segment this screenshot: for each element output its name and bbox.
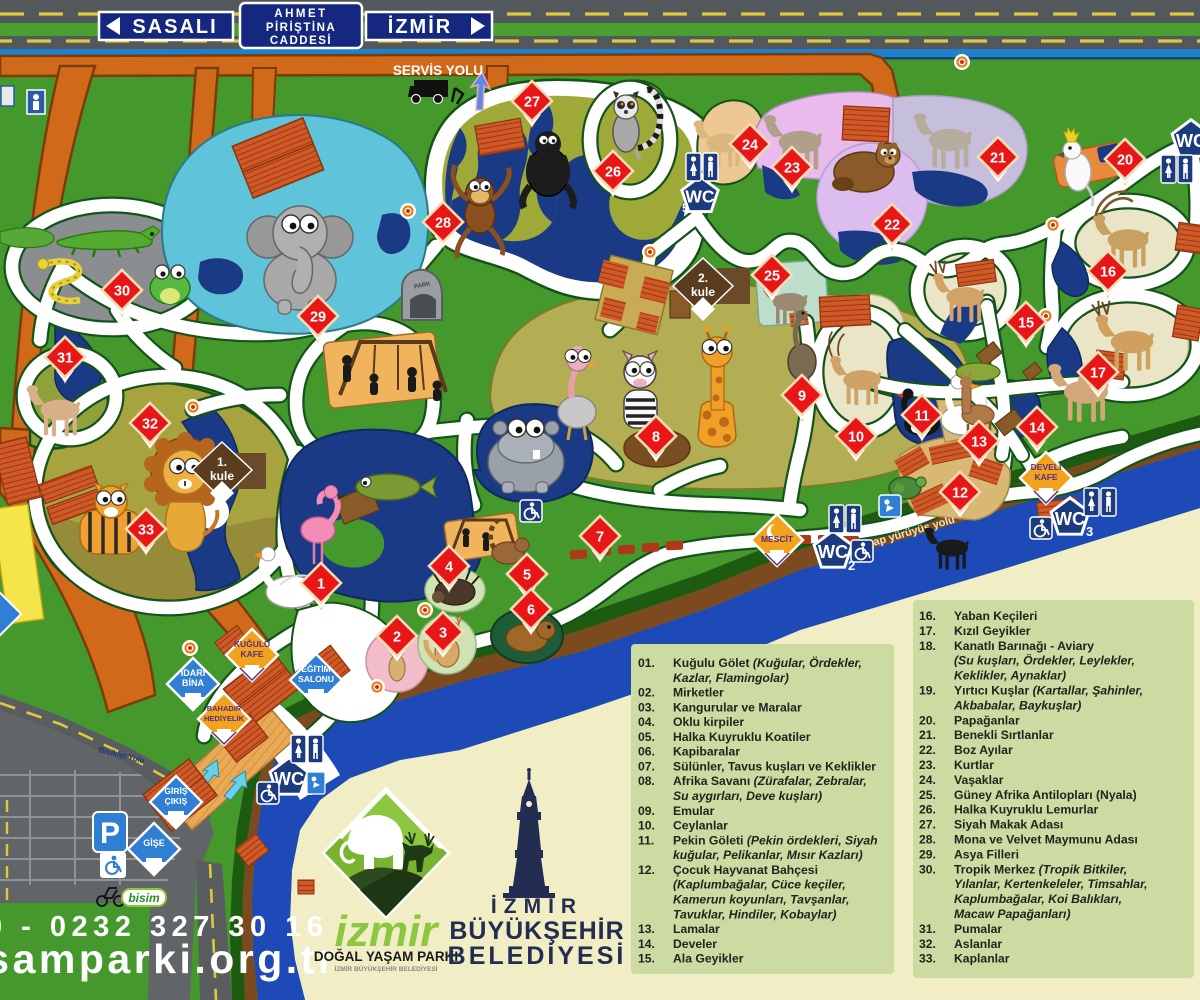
svg-text:Halka Kuyruklu Koatiler: Halka Kuyruklu Koatiler	[673, 730, 811, 744]
svg-text:31: 31	[57, 351, 73, 367]
svg-text:1: 1	[317, 577, 325, 593]
svg-text:BİNA: BİNA	[182, 678, 204, 688]
svg-text:5: 5	[682, 201, 689, 215]
svg-text:İZMİR BÜYÜKŞEHİR BELEDİYESİ: İZMİR BÜYÜKŞEHİR BELEDİYESİ	[335, 964, 438, 973]
svg-text:KAFE: KAFE	[1034, 472, 1057, 482]
svg-text:ÇIKIŞ: ÇIKIŞ	[165, 796, 188, 806]
svg-text:Vaşaklar: Vaşaklar	[954, 773, 1004, 787]
svg-text:BAHADIR: BAHADIR	[207, 704, 242, 713]
svg-text:17.: 17.	[919, 624, 936, 638]
svg-text:Benekli Sırtlanlar: Benekli Sırtlanlar	[954, 728, 1054, 742]
svg-text:Macaw Papağanları): Macaw Papağanları)	[954, 907, 1071, 921]
svg-text:EĞİTİM: EĞİTİM	[301, 663, 330, 674]
svg-text:Oklu kirpiler: Oklu kirpiler	[673, 715, 744, 729]
svg-text:Develer: Develer	[673, 937, 717, 951]
svg-text:1.: 1.	[217, 455, 227, 469]
svg-text:CADDESİ: CADDESİ	[270, 34, 332, 47]
svg-text:10: 10	[848, 430, 864, 446]
svg-text:Keklikler, Aynaklar): Keklikler, Aynaklar)	[954, 669, 1066, 683]
svg-text:Yaban Keçileri: Yaban Keçileri	[954, 609, 1037, 623]
svg-text:SERVİS YOLU: SERVİS YOLU	[393, 63, 483, 78]
svg-text:Afrika Savanı (Zürafalar, Zebr: Afrika Savanı (Zürafalar, Zebralar,	[673, 774, 867, 788]
svg-text:SALONU: SALONU	[298, 674, 334, 684]
svg-text:Tavuklar, Hindiler, Kobaylar): Tavuklar, Hindiler, Kobaylar)	[673, 907, 836, 921]
svg-text:Kanatlı Barınağı - Aviary: Kanatlı Barınağı - Aviary	[954, 639, 1094, 653]
svg-text:Kamerun koyunları, Tavşanlar,: Kamerun koyunları, Tavşanlar,	[673, 893, 849, 907]
svg-text:29.: 29.	[919, 847, 936, 861]
svg-text:kule: kule	[210, 469, 234, 483]
svg-text:MESCİT: MESCİT	[761, 534, 794, 544]
svg-text:Asya Filleri: Asya Filleri	[954, 847, 1019, 861]
svg-text:Pekin Göleti (Pekin ördekleri,: Pekin Göleti (Pekin ördekleri, Siyah	[673, 833, 878, 847]
svg-text:Kangurular ve Maralar: Kangurular ve Maralar	[673, 700, 802, 714]
svg-text:(Su kuşları, Ördekler, Leylekl: (Su kuşları, Ördekler, Leylekler,	[954, 653, 1135, 668]
svg-text:Kapibaralar: Kapibaralar	[673, 745, 740, 759]
svg-text:22.: 22.	[919, 743, 936, 757]
svg-text:kule: kule	[691, 285, 715, 299]
svg-text:BÜYÜKŞEHİR: BÜYÜKŞEHİR	[449, 916, 624, 945]
svg-text:13.: 13.	[638, 922, 655, 936]
svg-text:kuğular, Pelikanlar, Mısır K: kuğular, Pelikanlar, Mısır Kazları)	[673, 848, 863, 862]
svg-text:İZMİR: İZMİR	[491, 895, 583, 918]
svg-text:16: 16	[1100, 265, 1116, 281]
svg-text:Mona ve Velvet Maymunu Adası: Mona ve Velvet Maymunu Adası	[954, 833, 1138, 847]
svg-text:6: 6	[527, 603, 535, 619]
svg-text:20: 20	[1117, 153, 1133, 169]
svg-text:17: 17	[1090, 366, 1106, 382]
svg-text:İDARİ: İDARİ	[181, 668, 206, 678]
svg-text:12: 12	[952, 486, 968, 502]
svg-text:11: 11	[914, 409, 929, 425]
svg-text:Halka Kuyruklu Lemurlar: Halka Kuyruklu Lemurlar	[954, 803, 1099, 817]
svg-text:2: 2	[393, 630, 401, 646]
svg-text:14.: 14.	[638, 937, 655, 951]
svg-text:09.: 09.	[638, 804, 655, 818]
svg-text:02.: 02.	[638, 686, 655, 700]
svg-text:06.: 06.	[638, 745, 655, 759]
svg-text:(Kaplumbağalar, Cüce keçiler,: (Kaplumbağalar, Cüce keçiler,	[673, 878, 846, 892]
svg-text:bisim: bisim	[128, 891, 160, 905]
svg-text:11.: 11.	[638, 833, 654, 847]
svg-text:08.: 08.	[638, 774, 655, 788]
svg-text:Yılanlar, Kertenkeleler, Timsa: Yılanlar, Kertenkeleler, Timsahlar,	[954, 877, 1148, 891]
svg-text:25: 25	[764, 269, 780, 285]
svg-text:13: 13	[971, 435, 987, 451]
svg-text:10.: 10.	[638, 819, 655, 833]
svg-text:07.: 07.	[638, 760, 655, 774]
svg-text:Akbabalar, Baykuşlar): Akbabalar, Baykuşlar)	[953, 698, 1081, 712]
svg-text:Kurtlar: Kurtlar	[954, 758, 994, 772]
svg-text:Tropik Merkez (Tropik Bitkiler: Tropik Merkez (Tropik Bitkiler,	[954, 862, 1127, 876]
svg-text:P: P	[100, 817, 120, 850]
svg-text:26: 26	[605, 165, 621, 181]
svg-text:30: 30	[114, 284, 130, 300]
svg-text:24.: 24.	[919, 773, 936, 787]
svg-text:14: 14	[1029, 421, 1045, 437]
svg-text:03.: 03.	[638, 700, 655, 714]
svg-text:PİRİŞTİNA: PİRİŞTİNA	[266, 21, 336, 34]
svg-text:Siyah Makak Adası: Siyah Makak Adası	[954, 818, 1063, 832]
svg-text:Yırtıcı Kuşlar (Kartallar, Şah: Yırtıcı Kuşlar (Kartallar, Şahinler,	[954, 684, 1143, 698]
svg-text:3: 3	[439, 626, 447, 642]
svg-text:29: 29	[310, 310, 326, 326]
svg-text:22: 22	[884, 218, 900, 234]
svg-text:Mirketler: Mirketler	[673, 686, 724, 700]
svg-text:30.: 30.	[919, 862, 936, 876]
svg-text:4: 4	[445, 560, 453, 576]
svg-text:DOĞAL YAŞAM PARKI: DOĞAL YAŞAM PARKI	[314, 949, 458, 964]
svg-text:GİRİŞ: GİRİŞ	[164, 786, 187, 796]
svg-text:Kuğulu Gölet (Kuğular, Ördekle: Kuğulu Gölet (Kuğular, Ördekler,	[673, 655, 862, 670]
svg-text:Lamalar: Lamalar	[673, 922, 720, 936]
svg-text:Emular: Emular	[673, 804, 715, 818]
svg-text:12.: 12.	[638, 863, 655, 877]
svg-text:İZMİR: İZMİR	[388, 15, 452, 38]
svg-text:24: 24	[742, 138, 758, 154]
svg-text:04.: 04.	[638, 715, 655, 729]
svg-text:26.: 26.	[919, 803, 936, 817]
svg-text:Kızıl Geyikler: Kızıl Geyikler	[954, 624, 1031, 638]
svg-text:Sülünler, Tavus kuşları ve Kek: Sülünler, Tavus kuşları ve Keklikler	[673, 760, 876, 774]
svg-text:AHMET: AHMET	[274, 8, 327, 20]
svg-text:Su aygırları, Deve kuşları): Su aygırları, Deve kuşları)	[673, 789, 822, 803]
svg-text:20.: 20.	[919, 713, 936, 727]
svg-text:DEVELİ: DEVELİ	[1031, 462, 1062, 472]
svg-text:2.: 2.	[698, 271, 708, 285]
svg-text:Kazlar, Flamingolar): Kazlar, Flamingolar)	[673, 671, 789, 685]
svg-text:21.: 21.	[919, 728, 936, 742]
svg-text:Çocuk Hayvanat Bahçesi: Çocuk Hayvanat Bahçesi	[673, 863, 818, 877]
svg-text:32: 32	[142, 417, 158, 433]
svg-text:SASALI: SASALI	[132, 16, 217, 38]
svg-text:Ceylanlar: Ceylanlar	[673, 819, 728, 833]
svg-text:16.: 16.	[919, 609, 936, 623]
svg-text:15: 15	[1018, 316, 1034, 332]
svg-text:33: 33	[138, 523, 154, 539]
svg-text:27.: 27.	[919, 818, 936, 832]
svg-text:KAFE: KAFE	[240, 649, 263, 659]
svg-text:5: 5	[523, 568, 531, 584]
svg-text:32.: 32.	[919, 937, 936, 951]
svg-text:asamparki.org.tr: asamparki.org.tr	[0, 936, 337, 982]
svg-text:Boz Ayılar: Boz Ayılar	[954, 743, 1013, 757]
svg-text:27: 27	[524, 95, 540, 111]
svg-text:33.: 33.	[919, 952, 936, 966]
svg-text:Kaplumbağalar, Koi Balıkları,: Kaplumbağalar, Koi Balıkları,	[954, 892, 1122, 906]
svg-text:BELEDİYESİ: BELEDİYESİ	[448, 942, 627, 970]
svg-text:19.: 19.	[919, 684, 936, 698]
svg-text:28: 28	[435, 216, 451, 232]
svg-text:Papağanlar: Papağanlar	[954, 713, 1020, 727]
svg-text:23: 23	[784, 161, 800, 177]
svg-text:21: 21	[990, 151, 1006, 167]
svg-text:31.: 31.	[919, 922, 936, 936]
svg-text:18.: 18.	[919, 639, 936, 653]
svg-text:9: 9	[798, 389, 806, 405]
svg-text:3: 3	[1086, 524, 1093, 539]
svg-text:28.: 28.	[919, 833, 936, 847]
svg-text:Aslanlar: Aslanlar	[954, 937, 1002, 951]
svg-text:Ala Geyikler: Ala Geyikler	[673, 952, 744, 966]
svg-text:HEDİYELİK: HEDİYELİK	[204, 714, 245, 723]
svg-text:Güney Afrika Antilopları (Nyal: Güney Afrika Antilopları (Nyala)	[954, 788, 1137, 802]
svg-text:Kaplanlar: Kaplanlar	[954, 952, 1010, 966]
svg-text:7: 7	[596, 530, 604, 546]
svg-text:8: 8	[652, 430, 660, 446]
svg-text:Pumalar: Pumalar	[954, 922, 1002, 936]
svg-text:GİŞE: GİŞE	[143, 838, 165, 848]
svg-text:01.: 01.	[638, 656, 655, 670]
svg-text:23.: 23.	[919, 758, 936, 772]
svg-text:05.: 05.	[638, 730, 655, 744]
svg-text:15.: 15.	[638, 952, 655, 966]
svg-text:25.: 25.	[919, 788, 936, 802]
svg-text:KUĞULU: KUĞULU	[234, 638, 270, 649]
